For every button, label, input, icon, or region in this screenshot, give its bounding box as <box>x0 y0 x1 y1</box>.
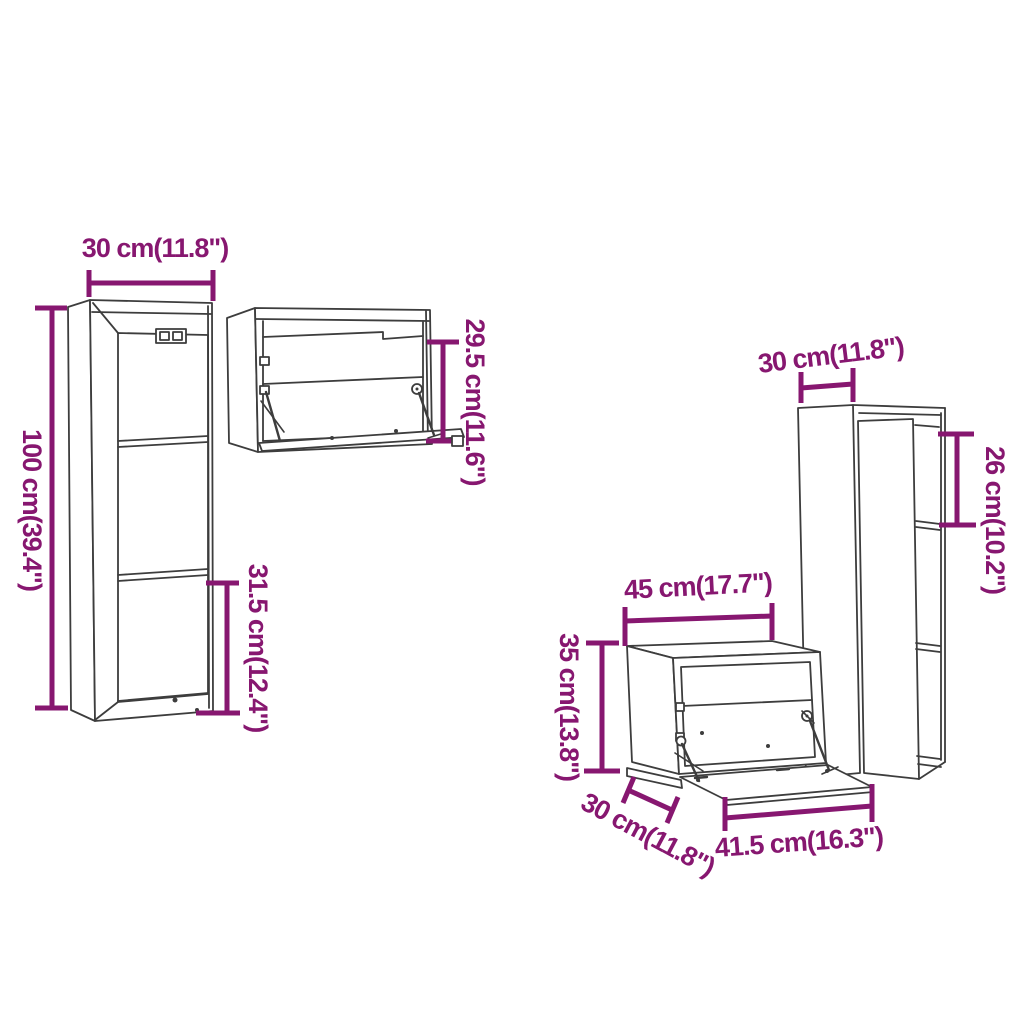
dim-label: 45 cm(17.7") <box>623 567 772 605</box>
product-dimension-diagram: 30 cm(11.8") 100 cm(39.4") 31.5 cm(12.4"… <box>0 0 1024 1024</box>
tall-wall-cabinet-left <box>68 300 213 721</box>
cabinet-body <box>90 300 213 721</box>
dim-bottom-cabinet-depth: 30 cm(11.8") <box>576 777 719 882</box>
dim-right-cabinet-depth: 30 cm(11.8") <box>756 331 905 403</box>
shelf-line <box>916 521 940 524</box>
flap-stay-bracket <box>452 436 463 446</box>
flap-hinge-mark <box>777 769 789 770</box>
dim-label: 26 cm(10.2") <box>980 446 1010 594</box>
dim-label: 35 cm(13.8") <box>554 633 584 781</box>
shelf-line <box>916 643 940 646</box>
hinge-plate <box>676 703 684 711</box>
dim-label: 30 cm(11.8") <box>756 331 905 379</box>
dim-middle-cabinet-height: 29.5 cm(11.6") <box>426 319 490 486</box>
dim-left-cabinet-height: 100 cm(39.4") <box>17 308 68 708</box>
dim-bottom-cabinet-width: 45 cm(17.7") <box>623 567 772 646</box>
dim-bottom-cabinet-height: 35 cm(13.8") <box>554 633 620 781</box>
dim-label: 31.5 cm(12.4") <box>243 564 273 732</box>
horizontal-wall-cabinet <box>227 308 464 452</box>
cabinet-side-panel <box>627 646 679 774</box>
dim-label: 100 cm(39.4") <box>17 429 47 591</box>
dim-label: 41.5 cm(16.3") <box>714 821 884 863</box>
dim-right-compartment-height: 26 cm(10.2") <box>938 434 1010 594</box>
hinge-plate <box>260 357 269 365</box>
cabinet-side-panel <box>227 308 258 452</box>
dim-label: 29.5 cm(11.6") <box>460 319 490 486</box>
hinge-plate <box>260 386 269 394</box>
dim-left-cabinet-width: 30 cm(11.8") <box>82 233 228 301</box>
diagram-canvas: 30 cm(11.8") 100 cm(39.4") 31.5 cm(12.4"… <box>0 0 1024 1024</box>
cabinet-door <box>858 419 919 779</box>
dim-label: 30 cm(11.8") <box>82 233 228 263</box>
